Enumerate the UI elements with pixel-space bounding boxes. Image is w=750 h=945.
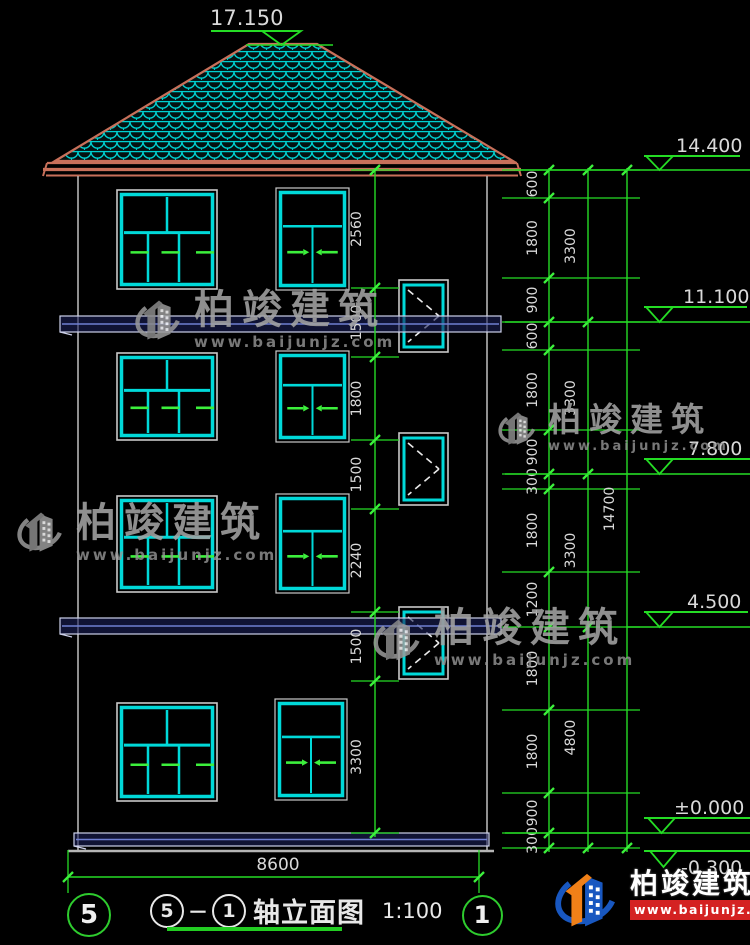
dim-label: 1500 xyxy=(349,457,365,493)
window-large-sliding xyxy=(117,353,217,440)
window-two-pane-sliding xyxy=(276,188,349,290)
dim-label: 3300 xyxy=(563,380,579,416)
drawing-name: 轴立面图 xyxy=(253,891,365,930)
axis-bubble-1: 1 xyxy=(462,895,503,936)
cad-linework: 6001800900600180090030018001200180018009… xyxy=(0,0,750,945)
window-two-pane-sliding xyxy=(276,351,349,442)
dim-label: 1200 xyxy=(525,582,541,618)
dim-label: 900 xyxy=(525,287,541,314)
window-outer-frame xyxy=(399,433,448,505)
dim-label: 1500 xyxy=(349,629,365,665)
elevation-value: 11.100 xyxy=(683,286,749,308)
window-large-sliding xyxy=(117,190,217,289)
elevation-value: ±0.000 xyxy=(674,797,744,819)
elevation-triangle xyxy=(646,459,673,474)
window-two-pane-sliding xyxy=(275,699,347,800)
dim-label: 600 xyxy=(525,171,541,198)
window-large-sliding xyxy=(117,496,217,592)
brand-name: 柏竣建筑 xyxy=(630,868,750,900)
dim-label: 3300 xyxy=(563,533,579,569)
axis-bubble-5: 5 xyxy=(67,893,111,937)
brand-logo-footer: 柏竣建筑 www.baijunjz.com xyxy=(546,868,750,940)
elevation-value: 14.400 xyxy=(676,135,742,157)
elevation-triangle xyxy=(646,612,673,627)
sash-slide-arrow xyxy=(303,553,309,559)
dim-label: 1800 xyxy=(525,651,541,687)
dim-label: 3300 xyxy=(563,228,579,264)
brand-logo-icon xyxy=(546,868,628,940)
dim-label: 2240 xyxy=(349,543,365,579)
dim-label-width: 8600 xyxy=(256,855,299,875)
elevation-value: 17.150 xyxy=(210,6,283,30)
dim-label: 4800 xyxy=(563,720,579,756)
window-two-pane-sliding xyxy=(276,494,349,593)
elevation-triangle xyxy=(646,307,673,322)
dim-label: 600 xyxy=(525,323,541,350)
sash-slide-arrow xyxy=(303,249,309,255)
dimension-system: 6001800900600180090030018001200180018009… xyxy=(63,165,640,893)
dim-label: 300 xyxy=(525,468,541,495)
elevation-triangle xyxy=(650,851,677,867)
sash-slide-arrow xyxy=(316,405,322,411)
window-large-sliding xyxy=(117,703,217,801)
brand-url-banner: www.baijunjz.com xyxy=(630,900,750,920)
dim-label: 1800 xyxy=(525,513,541,549)
title-axis-dash: － xyxy=(188,896,208,925)
dim-label: 900 xyxy=(525,800,541,827)
drawing-title: 5 － 1 轴立面图 1:100 xyxy=(150,891,443,930)
dim-label: 900 xyxy=(525,439,541,466)
logo-building-right xyxy=(585,876,603,927)
dim-label: 2560 xyxy=(349,211,365,247)
elevation-value: 7.800 xyxy=(688,438,742,460)
drawing-scale: 1:100 xyxy=(382,899,443,923)
sash-slide-arrow xyxy=(302,759,308,765)
title-underline xyxy=(167,927,342,931)
sash-slide-arrow xyxy=(316,553,322,559)
windows xyxy=(117,188,448,801)
sash-slide-arrow xyxy=(314,759,320,765)
title-axis-right-number: 1 xyxy=(222,900,235,922)
sash-slide-arrow xyxy=(303,405,309,411)
dim-label: 14700 xyxy=(602,487,618,532)
elevation-triangle xyxy=(648,818,675,833)
dim-label: 3300 xyxy=(349,739,365,775)
roof xyxy=(43,44,521,176)
title-axis-circle-left: 5 xyxy=(150,894,184,928)
dim-label: 1800 xyxy=(525,220,541,256)
window-stair-casement xyxy=(399,433,448,505)
elevation-drawing-canvas: 6001800900600180090030018001200180018009… xyxy=(0,0,750,945)
dim-label: 1800 xyxy=(525,372,541,408)
sash-slide-arrow xyxy=(316,249,322,255)
title-axis-left-number: 5 xyxy=(160,900,173,922)
dim-label: 1500 xyxy=(349,305,365,341)
title-axis-circle-right: 1 xyxy=(212,894,246,928)
roof-slope xyxy=(55,44,513,161)
elevation-value: 4.500 xyxy=(687,591,741,613)
dim-label: 1800 xyxy=(349,381,365,417)
dim-label: 300 xyxy=(525,827,541,854)
elevation-triangle xyxy=(646,156,673,170)
dim-label: 1800 xyxy=(525,734,541,770)
